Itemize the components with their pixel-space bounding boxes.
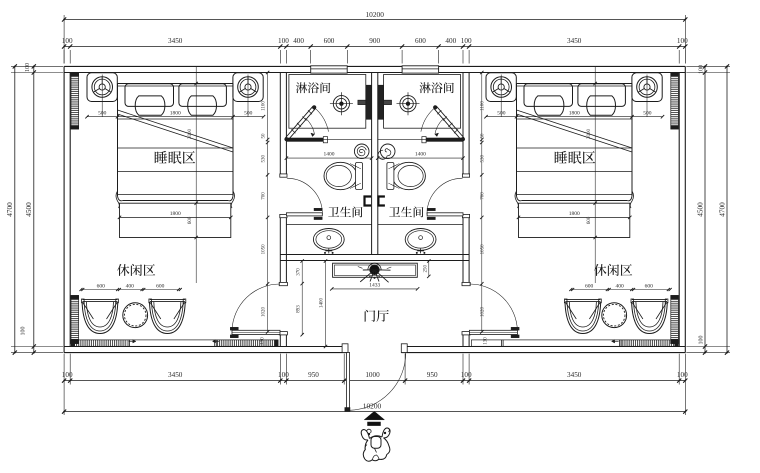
svg-text:3450: 3450	[567, 371, 582, 379]
svg-text:100: 100	[677, 371, 688, 379]
svg-text:130: 130	[483, 337, 488, 345]
svg-text:500: 500	[497, 111, 506, 117]
svg-text:700: 700	[481, 192, 486, 200]
svg-text:1020: 1020	[261, 307, 266, 318]
svg-text:3450: 3450	[168, 371, 183, 379]
svg-text:1800: 1800	[569, 211, 580, 217]
svg-text:400: 400	[126, 283, 135, 289]
svg-text:1050: 1050	[261, 244, 266, 255]
svg-text:2000: 2000	[188, 129, 193, 140]
svg-text:500: 500	[98, 111, 107, 117]
svg-text:100: 100	[461, 37, 472, 45]
svg-text:950: 950	[427, 371, 438, 379]
svg-text:100: 100	[278, 371, 289, 379]
svg-text:1400: 1400	[324, 152, 335, 158]
svg-text:600: 600	[585, 283, 594, 289]
svg-text:100: 100	[698, 336, 704, 345]
svg-text:4700: 4700	[718, 202, 726, 217]
svg-text:1400: 1400	[319, 298, 324, 309]
svg-text:600: 600	[97, 283, 106, 289]
svg-text:3450: 3450	[567, 37, 582, 45]
svg-text:1020: 1020	[481, 307, 486, 318]
svg-text:100: 100	[25, 63, 31, 72]
svg-text:600: 600	[415, 37, 426, 45]
svg-text:1433: 1433	[369, 283, 380, 289]
svg-text:500: 500	[643, 111, 652, 117]
svg-text:1100: 1100	[261, 101, 266, 111]
svg-text:1000: 1000	[365, 371, 380, 379]
svg-text:2000: 2000	[587, 129, 592, 140]
svg-text:893: 893	[297, 305, 302, 313]
svg-text:1800: 1800	[569, 111, 580, 117]
svg-text:400: 400	[293, 37, 304, 45]
svg-text:1100: 1100	[481, 101, 486, 111]
svg-text:400: 400	[615, 283, 624, 289]
svg-text:4500: 4500	[25, 202, 33, 217]
svg-text:250: 250	[424, 264, 429, 272]
svg-text:130: 130	[261, 337, 266, 345]
svg-text:10200: 10200	[363, 401, 382, 410]
svg-text:10200: 10200	[365, 10, 384, 19]
svg-text:370: 370	[297, 268, 302, 276]
svg-text:1800: 1800	[170, 211, 181, 217]
svg-text:600: 600	[156, 283, 165, 289]
svg-text:950: 950	[308, 371, 319, 379]
svg-text:1800: 1800	[170, 111, 181, 117]
svg-text:100: 100	[461, 371, 472, 379]
svg-text:600: 600	[188, 216, 193, 224]
svg-text:100: 100	[62, 37, 73, 45]
svg-text:600: 600	[324, 37, 335, 45]
svg-text:100: 100	[62, 371, 73, 379]
svg-text:530: 530	[481, 154, 486, 162]
svg-text:100: 100	[278, 37, 289, 45]
svg-text:600: 600	[587, 216, 592, 224]
svg-text:4500: 4500	[696, 202, 704, 217]
svg-text:3450: 3450	[168, 37, 183, 45]
svg-text:50: 50	[261, 133, 266, 139]
svg-text:100: 100	[21, 327, 27, 336]
svg-text:700: 700	[261, 192, 266, 200]
svg-text:1400: 1400	[415, 152, 426, 158]
svg-text:1050: 1050	[481, 244, 486, 255]
svg-text:500: 500	[244, 111, 253, 117]
svg-text:400: 400	[445, 37, 456, 45]
svg-text:50: 50	[481, 133, 486, 139]
svg-text:530: 530	[261, 154, 266, 162]
svg-text:600: 600	[645, 283, 654, 289]
svg-text:900: 900	[369, 37, 380, 45]
svg-text:100: 100	[677, 37, 688, 45]
svg-text:4700: 4700	[6, 202, 14, 217]
